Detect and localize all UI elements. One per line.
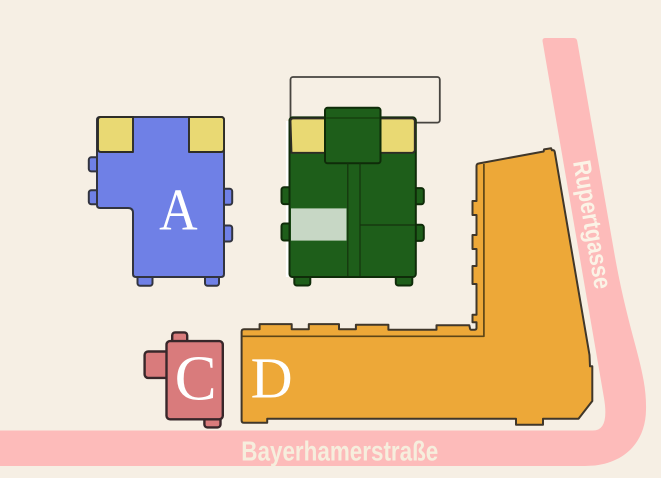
svg-text:Bayerhamerstraße: Bayerhamerstraße	[241, 435, 438, 466]
svg-text:C: C	[175, 344, 217, 414]
svg-text:A: A	[159, 177, 198, 243]
svg-text:D: D	[251, 346, 293, 411]
